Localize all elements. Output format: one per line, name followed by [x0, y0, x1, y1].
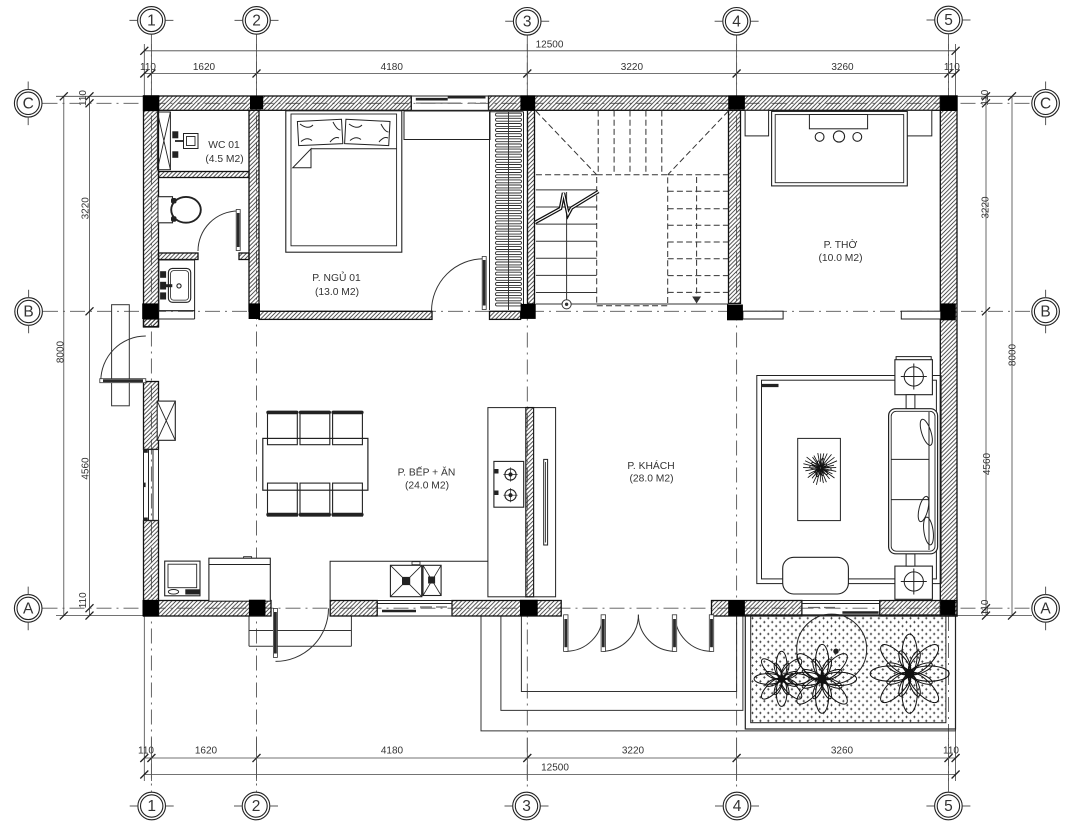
svg-text:3: 3	[523, 13, 532, 30]
svg-text:P. BẾP + ĂN: P. BẾP + ĂN	[398, 466, 456, 479]
svg-text:(28.0 M2): (28.0 M2)	[629, 474, 673, 485]
svg-text:110: 110	[78, 592, 89, 608]
svg-text:(10.0 M2): (10.0 M2)	[818, 253, 862, 264]
svg-text:C: C	[23, 95, 34, 112]
svg-text:P. NGỦ 01: P. NGỦ 01	[312, 271, 361, 284]
svg-text:B: B	[23, 304, 33, 321]
svg-text:1: 1	[147, 798, 156, 815]
svg-text:3220: 3220	[981, 196, 992, 219]
svg-text:3260: 3260	[831, 62, 854, 73]
svg-text:3260: 3260	[831, 746, 854, 757]
svg-text:3: 3	[522, 798, 531, 815]
svg-text:110: 110	[138, 746, 154, 757]
svg-text:110: 110	[944, 62, 960, 73]
svg-text:8000: 8000	[1008, 343, 1019, 366]
svg-text:2: 2	[252, 12, 261, 29]
svg-text:5: 5	[944, 798, 953, 815]
svg-text:8000: 8000	[56, 340, 67, 363]
svg-text:3220: 3220	[621, 62, 644, 73]
svg-text:4: 4	[732, 13, 741, 30]
svg-text:A: A	[1040, 600, 1051, 617]
svg-text:1: 1	[147, 12, 156, 29]
svg-text:P. KHÁCH: P. KHÁCH	[627, 459, 674, 472]
svg-text:5: 5	[944, 12, 953, 29]
svg-text:2: 2	[252, 798, 261, 815]
svg-text:3220: 3220	[622, 746, 645, 757]
svg-text:4560: 4560	[982, 452, 993, 475]
svg-text:4560: 4560	[81, 457, 92, 480]
svg-text:A: A	[23, 600, 34, 617]
svg-text:(24.0 M2): (24.0 M2)	[405, 481, 449, 492]
svg-text:110: 110	[140, 62, 156, 73]
svg-text:12500: 12500	[536, 40, 564, 51]
svg-text:(13.0 M2): (13.0 M2)	[315, 287, 359, 298]
svg-text:1620: 1620	[193, 62, 216, 73]
svg-text:B: B	[1040, 304, 1050, 321]
svg-text:P. THỜ: P. THỜ	[824, 238, 858, 251]
svg-text:1620: 1620	[195, 746, 218, 757]
svg-text:12500: 12500	[541, 763, 569, 774]
svg-text:4180: 4180	[381, 62, 404, 73]
svg-text:110: 110	[943, 746, 959, 757]
svg-text:WC 01: WC 01	[208, 140, 240, 151]
svg-text:4180: 4180	[381, 746, 404, 757]
svg-text:4: 4	[733, 798, 742, 815]
svg-text:3220: 3220	[81, 197, 92, 220]
svg-text:C: C	[1040, 95, 1051, 112]
svg-text:110: 110	[980, 599, 991, 615]
svg-text:(4.5 M2): (4.5 M2)	[205, 154, 243, 165]
